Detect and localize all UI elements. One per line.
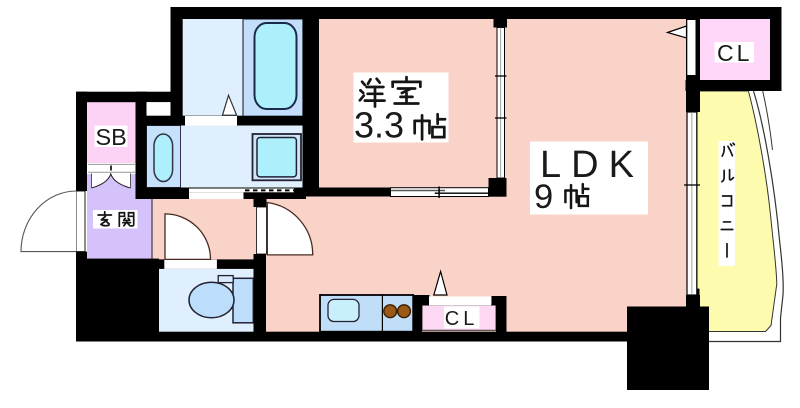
svg-text:CL: CL — [717, 40, 752, 66]
svg-text:CL: CL — [445, 308, 479, 330]
svg-text:SB: SB — [96, 124, 127, 150]
svg-text:3.3: 3.3 — [354, 105, 404, 146]
svg-text:LDK: LDK — [540, 144, 644, 186]
svg-text:9: 9 — [534, 178, 553, 216]
